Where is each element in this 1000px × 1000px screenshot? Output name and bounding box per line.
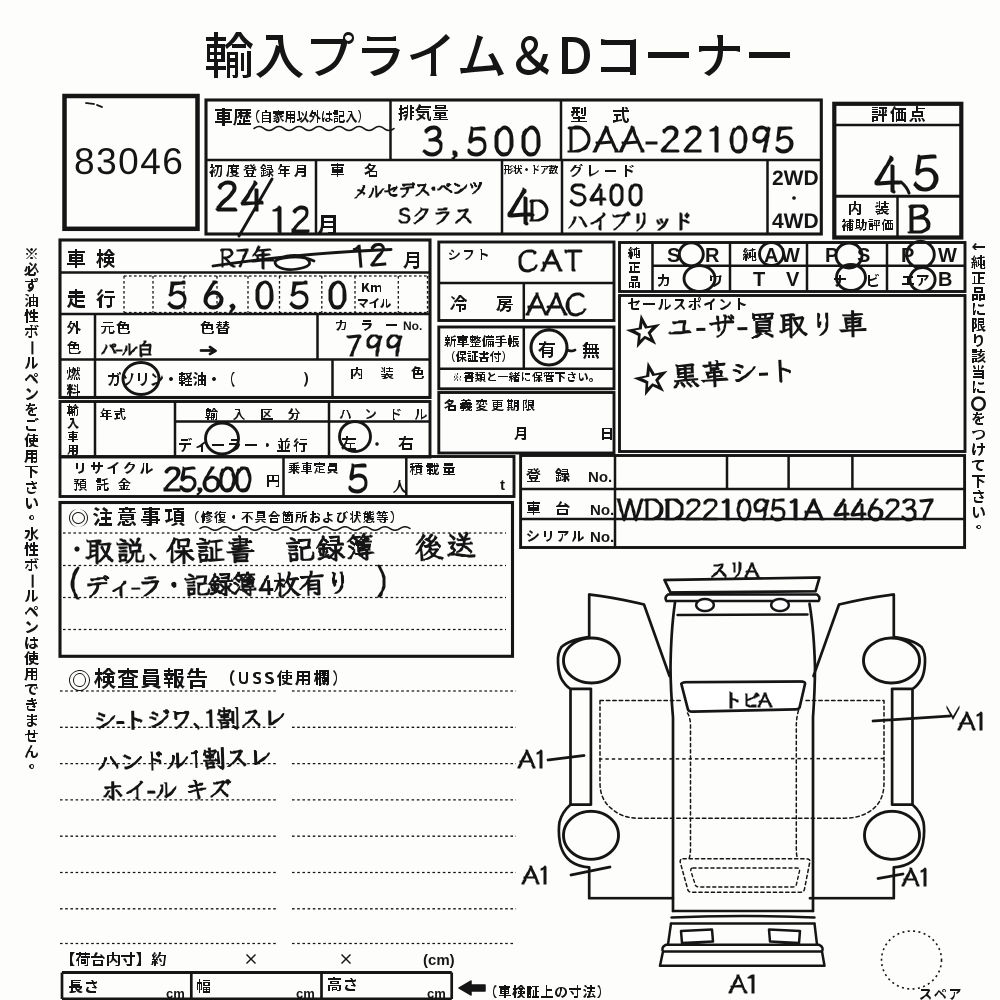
svg-text:T: T [753,269,765,291]
svg-text:No.: No. [590,529,614,546]
svg-text:83046: 83046 [74,141,184,182]
svg-text:R: R [705,245,720,267]
svg-text:W: W [938,245,957,267]
svg-text:2WD: 2WD [772,167,819,190]
svg-text:B: B [938,269,952,291]
svg-text:cm: cm [166,986,185,1000]
svg-text:No.: No. [590,502,614,519]
svg-text:cm: cm [427,986,446,1000]
svg-text:t: t [500,477,505,494]
svg-text:No.: No. [588,469,612,486]
svg-text:cm: cm [296,986,315,1000]
svg-text:V: V [786,269,800,291]
svg-text:No.: No. [403,319,422,333]
svg-text:(cm): (cm) [423,952,455,969]
svg-text:4WD: 4WD [772,210,819,233]
